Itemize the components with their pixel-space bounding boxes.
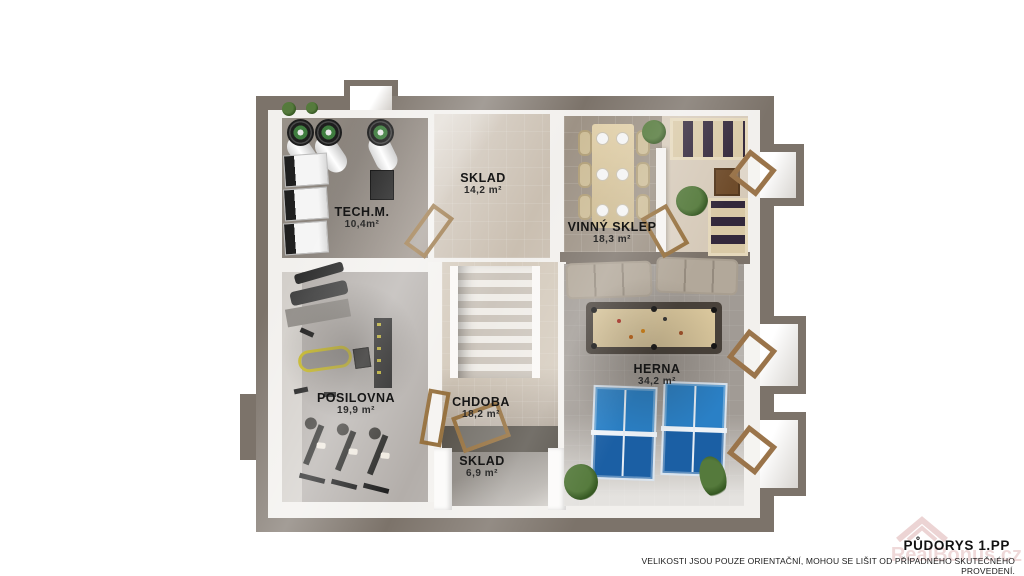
pool-ball [663,317,667,321]
bike-seat [380,452,390,459]
bike-console [336,423,349,436]
pool-pocket [711,343,717,349]
sofa [655,257,738,296]
room-area: 18,3 m² [552,234,672,245]
electrical-cabinet [370,170,394,200]
gym-station [353,347,372,369]
ventilation-fan-icon [367,119,394,146]
room-label-techm: TECH.M. 10,4m² [322,205,402,230]
room-label-sklad-top: SKLAD 14,2 m² [443,171,523,196]
sofa [565,261,652,300]
plate [596,204,609,217]
potted-plant [676,186,708,216]
wall-plant [306,102,318,114]
pool-pocket [651,306,657,312]
room-area: 19,9 m² [316,405,396,416]
room-name: SKLAD [443,171,523,185]
room-name: HERNA [617,362,697,376]
room-area: 34,2 m² [617,376,697,387]
plate [616,132,629,145]
plate [616,168,629,181]
dining-table [592,124,634,228]
plan-title: PŮDORYS 1.PP [710,538,1010,553]
pool-ball [617,319,621,323]
bike-base [331,479,357,490]
bike-seat [348,448,358,455]
pool-pocket [591,343,597,349]
dumbbell-rack-weights [377,323,381,383]
hvac-unit [283,153,329,188]
wine-rack [708,198,748,256]
chair [578,162,592,188]
bike-seat [316,442,326,449]
room-name: TECH.M. [322,205,402,219]
plate [596,168,609,181]
plate [616,204,629,217]
room-name: VINNÝ SKLEP [552,220,672,234]
bike-console [304,417,317,430]
pool-pocket [591,307,597,313]
roof-notch [344,80,398,114]
pool-table [586,302,722,354]
dumbbell-rack [374,318,392,388]
pool-ball [679,331,683,335]
pool-pocket [711,307,717,313]
potted-plant [564,464,598,500]
floorplan-render: TECH.M. 10,4m² SKLAD 14,2 m² VINNÝ SKLEP… [0,0,1024,576]
pool-ball [641,329,645,333]
room-name: POSILOVNA [316,391,396,405]
outer-wall-step [240,394,258,460]
wall-plant [282,102,296,116]
plan-disclaimer: VELIKOSTI JSOU POUZE ORIENTAČNÍ, MOHOU S… [595,556,1015,576]
chair [636,162,650,188]
room-name: CHDOBA [441,395,521,409]
bike-base [363,483,389,494]
chair [578,194,592,220]
room-area: 14,2 m² [443,185,523,196]
room-label-vinny-sklep: VINNÝ SKLEP 18,3 m² [552,220,672,245]
staircase [450,266,540,378]
room-label-sklad-bottom: SKLAD 6,9 m² [442,454,522,479]
pool-ball [629,335,633,339]
chair [578,130,592,156]
room-label-posilovna: POSILOVNA 19,9 m² [316,391,396,416]
ventilation-fan-icon [287,119,314,146]
room-area: 10,4m² [322,219,402,230]
ping-pong-table [590,385,657,481]
room-label-herna: HERNA 34,2 m² [617,362,697,387]
pool-pocket [651,344,657,350]
plate [596,132,609,145]
ventilation-fan-icon [315,119,342,146]
room-name: SKLAD [442,454,522,468]
bike-base [299,473,325,484]
wine-rack [670,118,748,160]
room-label-chodba: CHDOBA 18,2 m² [441,395,521,420]
room-area: 18,2 m² [441,409,521,420]
room-area: 6,9 m² [442,468,522,479]
bike-console [368,427,381,440]
potted-plant [642,120,666,144]
